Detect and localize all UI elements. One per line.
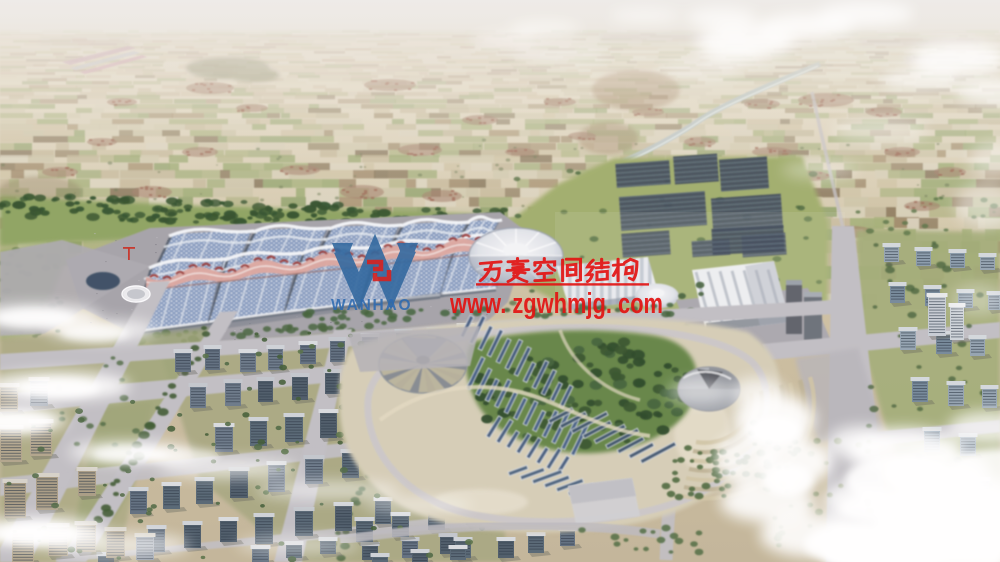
svg-text:WANHAO: WANHAO bbox=[331, 297, 412, 314]
svg-text:www. zgwhmjg. com: www. zgwhmjg. com bbox=[449, 288, 663, 320]
